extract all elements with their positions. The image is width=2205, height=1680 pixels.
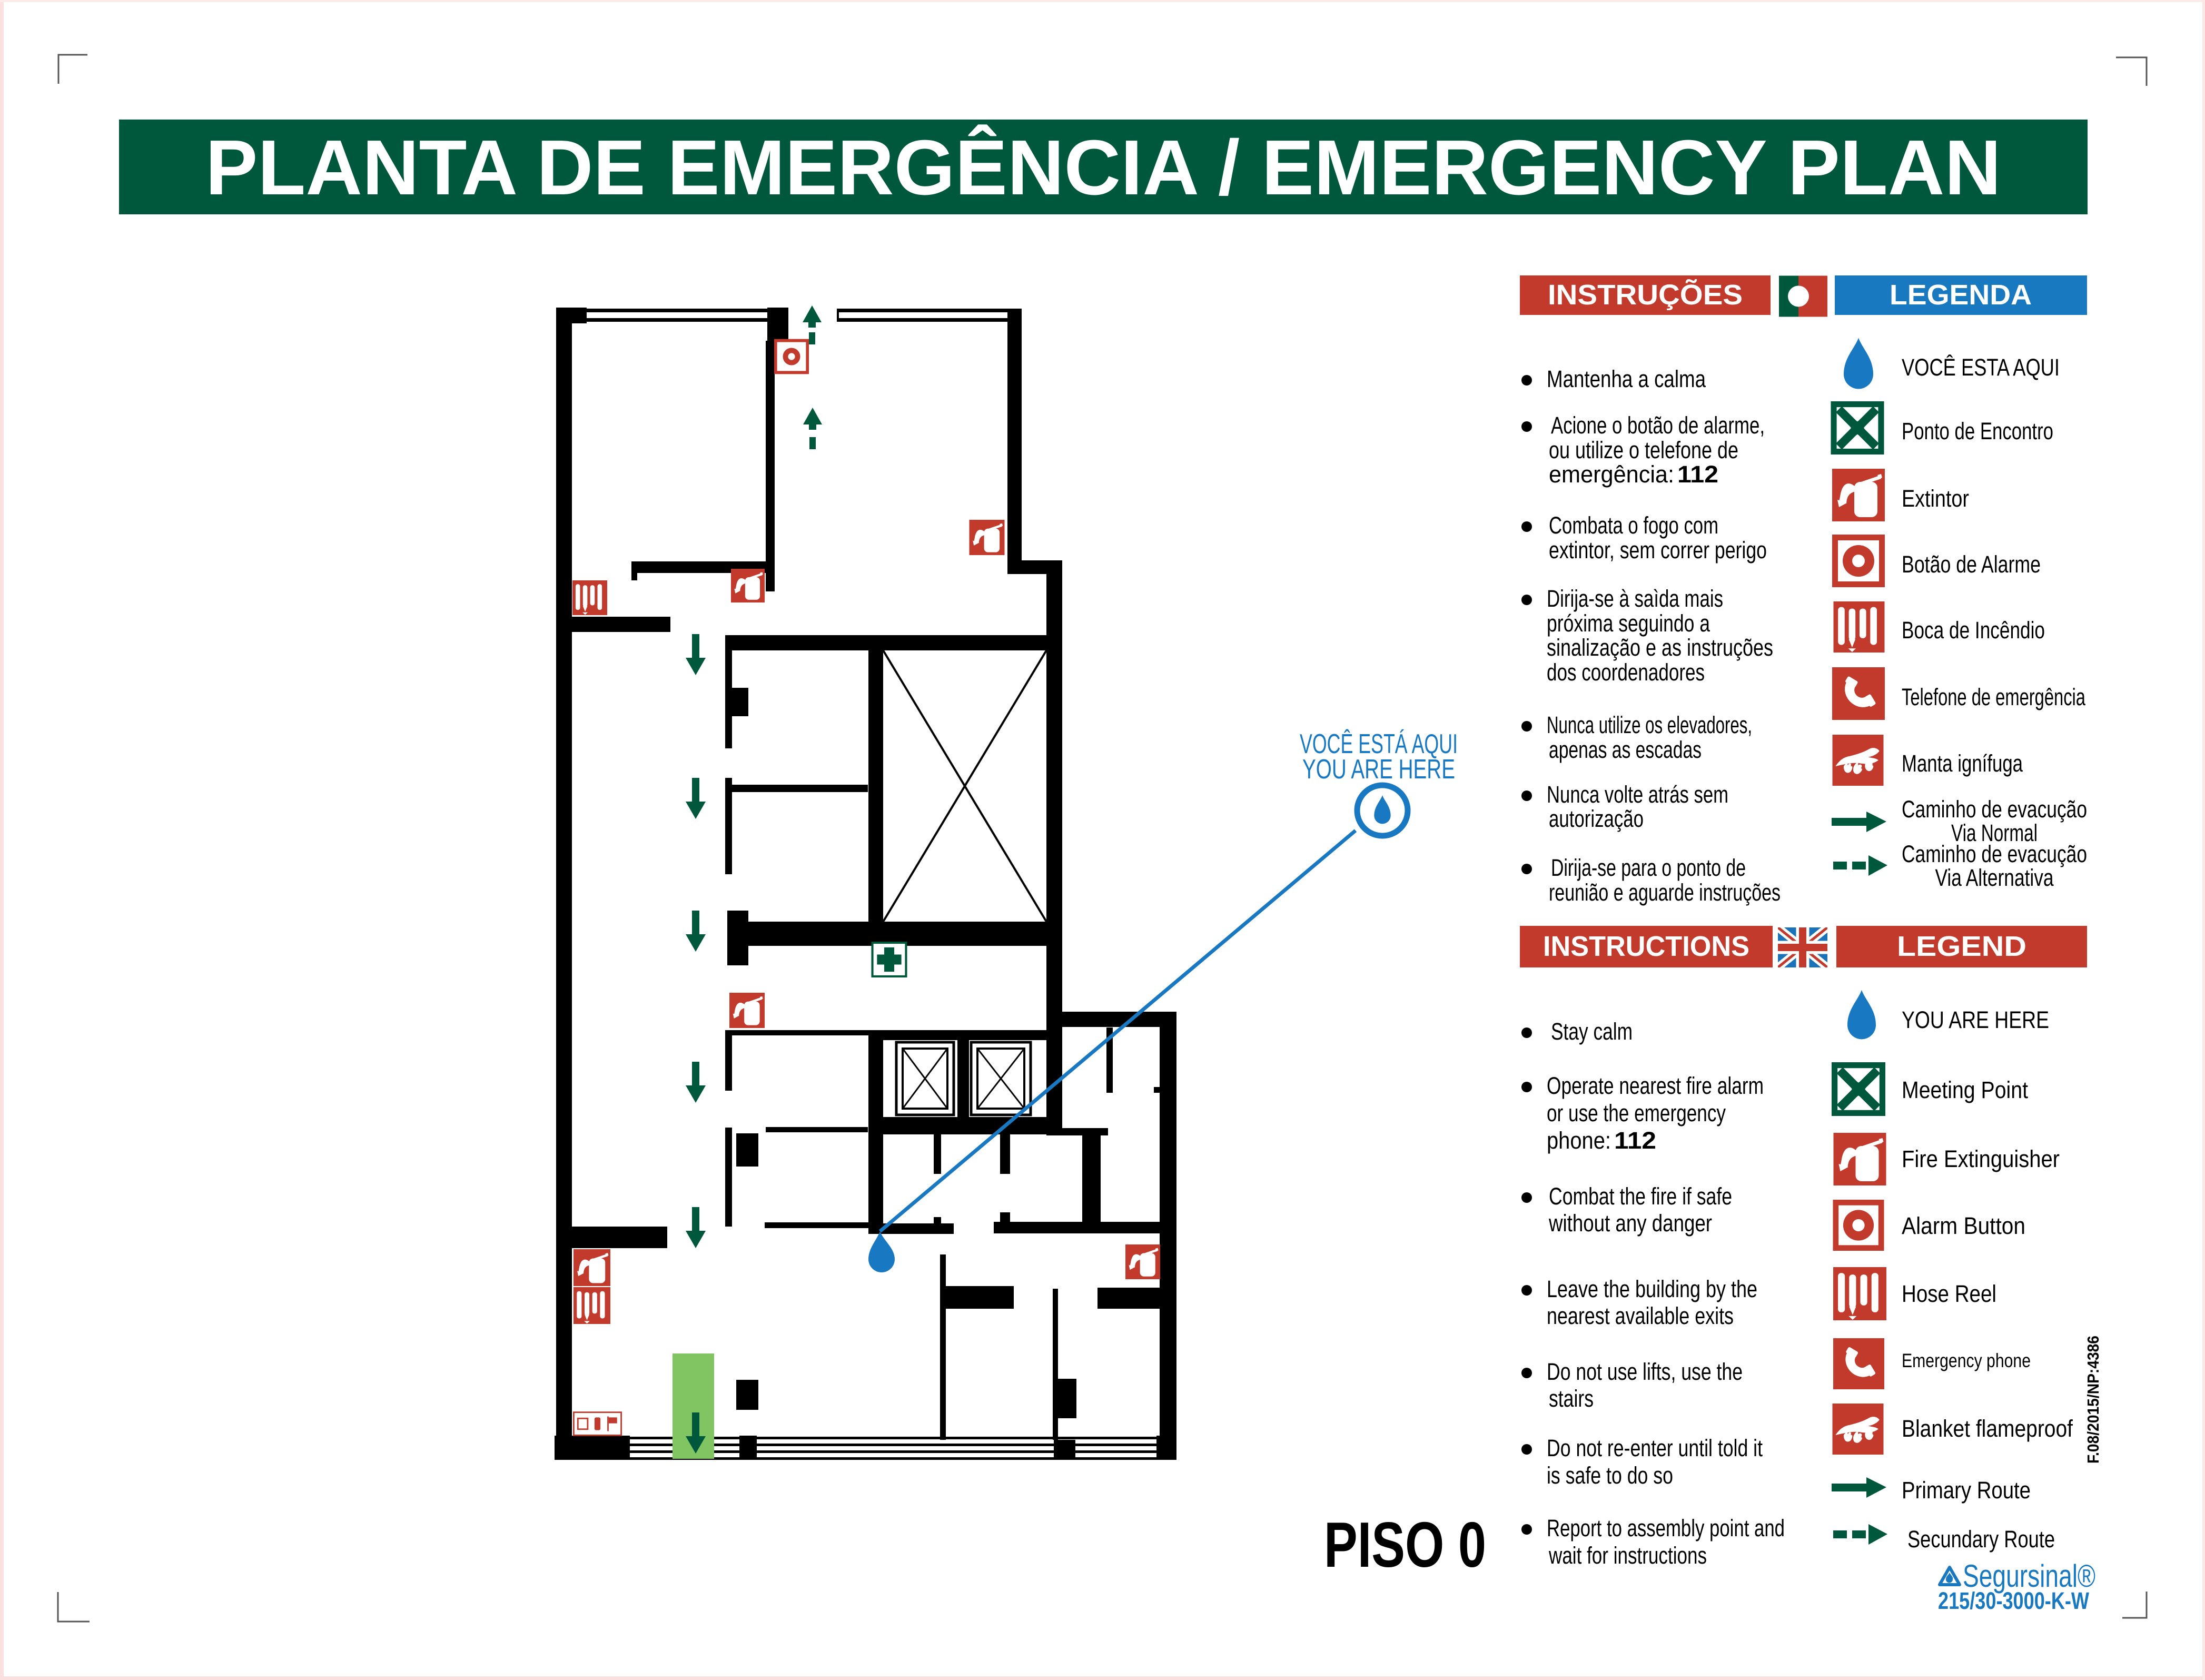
svg-text:Hose Reel: Hose Reel xyxy=(1902,1280,1996,1307)
svg-text:sinalização e as instruções: sinalização e as instruções xyxy=(1547,634,1773,661)
svg-text:is safe to do so: is safe to do so xyxy=(1547,1462,1673,1489)
svg-text:LEGENDA: LEGENDA xyxy=(1890,279,2032,311)
svg-text:Do not re-enter until told it: Do not re-enter until told it xyxy=(1547,1435,1763,1461)
svg-text:emergência:: emergência: xyxy=(1549,461,1674,488)
svg-text:ou utilize o telefone de: ou utilize o telefone de xyxy=(1549,437,1738,463)
svg-text:112: 112 xyxy=(1614,1127,1656,1154)
svg-text:Telefone de emergência: Telefone de emergência xyxy=(1902,684,2086,710)
svg-text:Blanket flameproof: Blanket flameproof xyxy=(1902,1415,2073,1442)
svg-text:Emergency phone: Emergency phone xyxy=(1902,1350,2031,1371)
svg-text:112: 112 xyxy=(1677,461,1718,488)
svg-text:215/30-3000-K-W: 215/30-3000-K-W xyxy=(1938,1587,2089,1614)
svg-text:YOU ARE HERE: YOU ARE HERE xyxy=(1902,1006,2049,1033)
svg-text:próxima seguindo a: próxima seguindo a xyxy=(1547,610,1710,637)
svg-text:Acione o botão de alarme,: Acione o botão de alarme, xyxy=(1551,412,1765,439)
svg-text:without any danger: without any danger xyxy=(1548,1210,1712,1237)
svg-text:Combat the fire if safe: Combat the fire if safe xyxy=(1549,1183,1732,1210)
svg-text:Primary Route: Primary Route xyxy=(1902,1477,2031,1504)
svg-text:LEGEND: LEGEND xyxy=(1897,931,2026,962)
svg-text:autorização: autorização xyxy=(1549,805,1644,832)
svg-text:Stay calm: Stay calm xyxy=(1551,1018,1633,1045)
svg-text:Botão de Alarme: Botão de Alarme xyxy=(1902,551,2041,578)
svg-text:Mantenha a calma: Mantenha a calma xyxy=(1547,365,1706,392)
svg-text:Meeting Point: Meeting Point xyxy=(1902,1076,2028,1103)
svg-text:Extintor: Extintor xyxy=(1902,485,1969,512)
svg-text:phone:: phone: xyxy=(1547,1127,1611,1154)
svg-text:INSTRUÇÕES: INSTRUÇÕES xyxy=(1548,279,1743,311)
svg-text:PISO 0: PISO 0 xyxy=(1324,1509,1486,1580)
svg-text:Via Alternativa: Via Alternativa xyxy=(1935,864,2054,891)
svg-text:Combata o fogo com: Combata o fogo com xyxy=(1549,512,1718,539)
svg-text:Nunca volte atrás sem: Nunca volte atrás sem xyxy=(1547,781,1728,808)
svg-text:Leave the building by the: Leave the building by the xyxy=(1547,1276,1757,1302)
svg-text:reunião e aguarde instruções: reunião e aguarde instruções xyxy=(1549,879,1781,906)
svg-text:Caminho de evacução: Caminho de evacução xyxy=(1902,841,2087,867)
svg-text:Dirija-se à saìda mais: Dirija-se à saìda mais xyxy=(1547,585,1723,612)
svg-text:INSTRUCTIONS: INSTRUCTIONS xyxy=(1543,931,1749,962)
svg-text:Nunca utilize os elevadores,: Nunca utilize os elevadores, xyxy=(1547,711,1752,738)
svg-text:or use the emergency: or use the emergency xyxy=(1547,1100,1726,1126)
svg-text:Alarm Button: Alarm Button xyxy=(1902,1212,2025,1239)
svg-text:VOCÊ ESTA AQUI: VOCÊ ESTA AQUI xyxy=(1902,354,2060,381)
svg-text:Secundary Route: Secundary Route xyxy=(1907,1526,2055,1553)
svg-text:Dirija-se para o ponto de: Dirija-se para o ponto de xyxy=(1551,854,1746,881)
svg-text:YOU ARE HERE: YOU ARE HERE xyxy=(1302,754,1455,785)
svg-text:PLANTA DE EMERGÊNCIA / EMERGEN: PLANTA DE EMERGÊNCIA / EMERGENCY PLAN xyxy=(205,124,2001,211)
svg-text:nearest available exits: nearest available exits xyxy=(1547,1302,1734,1329)
svg-text:Report to assembly point and: Report to assembly point and xyxy=(1547,1515,1785,1541)
svg-text:wait for instructions: wait for instructions xyxy=(1548,1542,1707,1569)
svg-text:Boca de Incêndio: Boca de Incêndio xyxy=(1902,617,2045,644)
svg-text:dos coordenadores: dos coordenadores xyxy=(1547,659,1705,686)
svg-text:Caminho de evacução: Caminho de evacução xyxy=(1902,796,2087,823)
svg-text:stairs: stairs xyxy=(1549,1385,1594,1412)
svg-text:Manta ignífuga: Manta ignífuga xyxy=(1902,750,2023,777)
svg-text:Fire Extinguisher: Fire Extinguisher xyxy=(1902,1145,2060,1172)
svg-text:F.08/2015/NP:4386: F.08/2015/NP:4386 xyxy=(2084,1336,2102,1464)
svg-text:extintor, sem correr perigo: extintor, sem correr perigo xyxy=(1549,537,1767,564)
svg-text:Do not use lifts, use the: Do not use lifts, use the xyxy=(1547,1358,1743,1385)
svg-text:apenas as escadas: apenas as escadas xyxy=(1549,736,1702,763)
svg-text:Operate nearest fire alarm: Operate nearest fire alarm xyxy=(1547,1072,1764,1099)
svg-text:Ponto de Encontro: Ponto de Encontro xyxy=(1902,418,2053,444)
